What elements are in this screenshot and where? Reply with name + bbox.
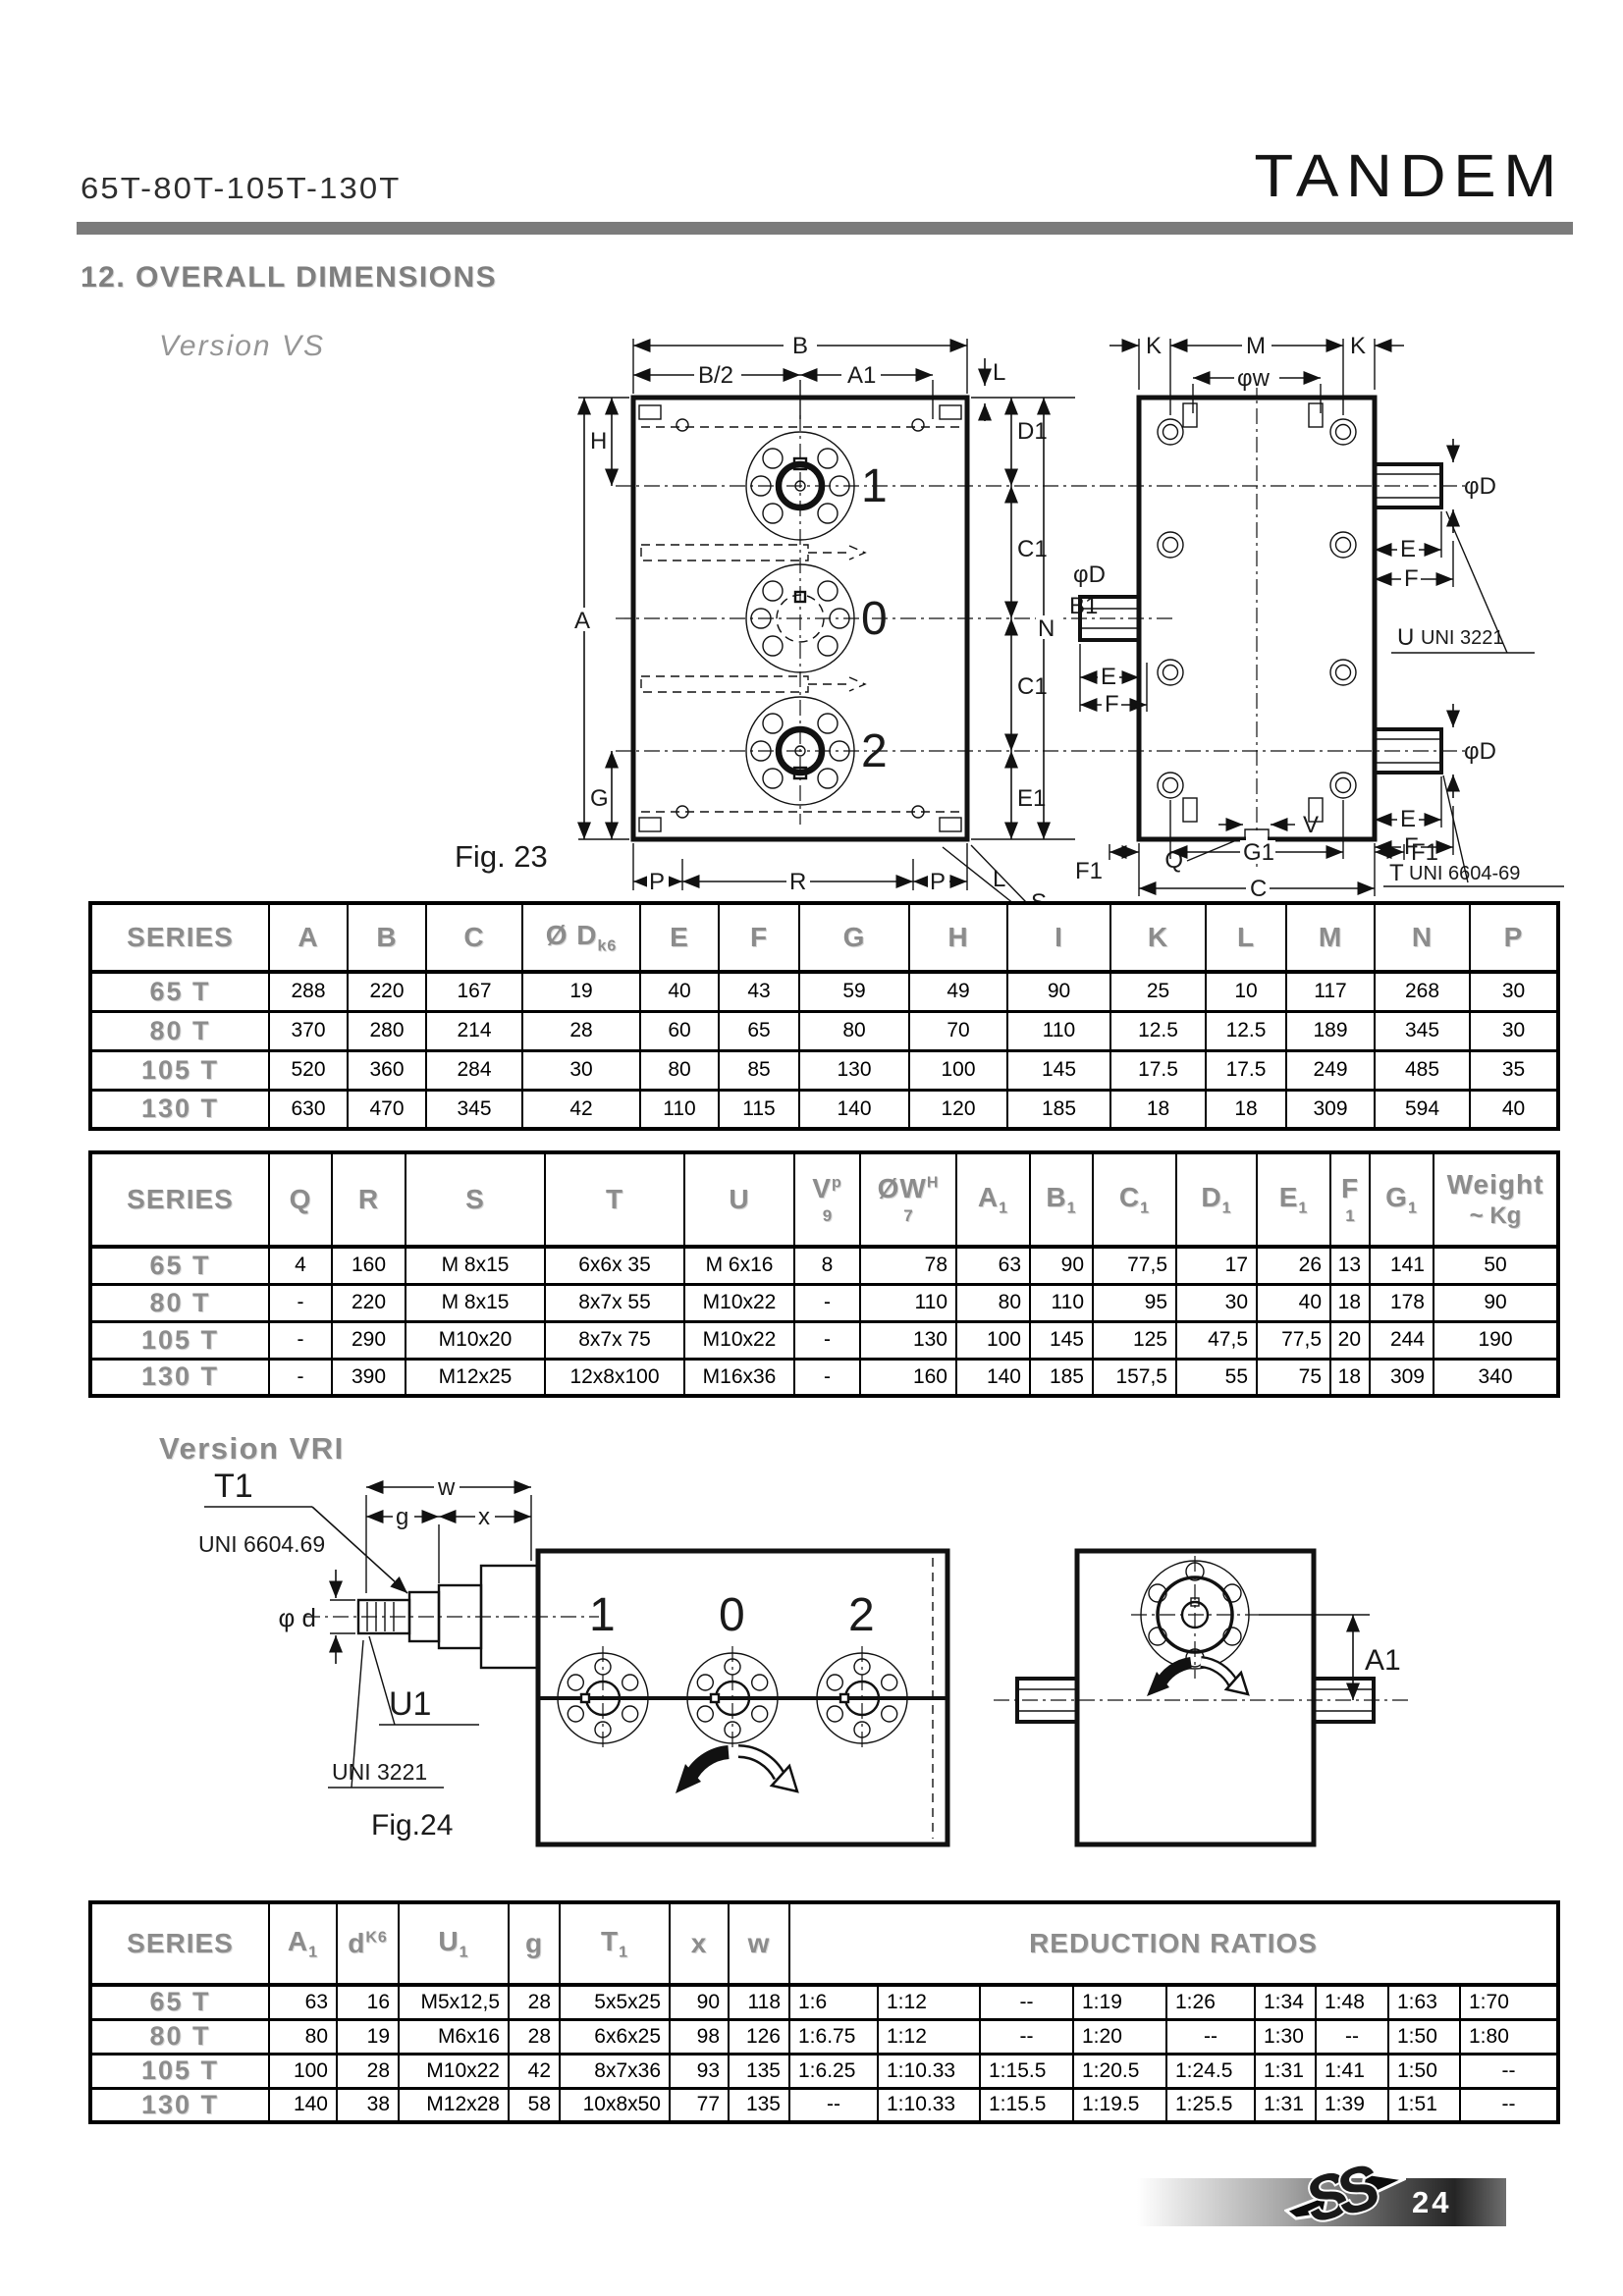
value-cell: 28 [522,1011,640,1050]
value-cell: 13 [1330,1247,1370,1284]
value-cell: 309 [1370,1359,1434,1396]
dim-M: M [1246,333,1266,359]
value-cell: 47,5 [1176,1321,1257,1359]
value-cell: 8x7x36 [560,2054,670,2088]
value-cell: 1:25.5 [1166,2088,1255,2122]
table2-header-r: R [332,1152,406,1247]
value-cell: 390 [332,1359,406,1396]
value-cell: M12x28 [399,2088,509,2122]
table2-header-t: T [545,1152,684,1247]
value-cell: 90 [1007,972,1110,1011]
value-cell: 290 [332,1321,406,1359]
value-cell: 370 [269,1011,348,1050]
value-cell: 40 [1257,1284,1330,1321]
dim-F-mid: F [1105,691,1119,718]
series-label: 80 T [90,2019,269,2054]
value-cell: 1:15.5 [980,2054,1073,2088]
value-cell: 1:63 [1388,1985,1460,2019]
value-cell: 1:6.25 [789,2054,878,2088]
value-cell: 8x7x 55 [545,1284,684,1321]
value-cell: 110 [1030,1284,1093,1321]
dim-R: R [789,869,806,895]
value-cell: M 6x16 [684,1247,794,1284]
value-cell: 1:19 [1073,1985,1166,2019]
dim-phid: φ d [278,1603,316,1632]
ref-U1: U1 [389,1685,431,1723]
table1-header-f: F [719,903,799,972]
table1-header-e: E [640,903,719,972]
value-cell: 16 [337,1985,399,2019]
value-cell: 77,5 [1257,1321,1330,1359]
table1-header-c: C [426,903,522,972]
table3-header-a: A1 [269,1902,337,1985]
fig23-drawing: 1 0 2 B B/2 A1 L H A G P R [388,329,1623,928]
fig24-caption: Fig.24 [371,1809,453,1842]
value-cell: -- [980,1985,1073,2019]
dimensions-table-2: SERIESQRSTUVp9ØWH7A1B1C1D1E1F1G1Weight~ … [88,1150,1560,1398]
dim-C: C [1250,876,1267,902]
value-cell: 1:24.5 [1166,2054,1255,2088]
value-cell: 77,5 [1093,1247,1176,1284]
value-cell: 17.5 [1206,1050,1286,1090]
table3-header-reduction-ratios: REDUCTION RATIOS [789,1902,1558,1985]
value-cell: 35 [1470,1050,1558,1090]
table1-header-a: A [269,903,348,972]
table2-header-b: B1 [1030,1152,1093,1247]
port-number-0: 0 [861,593,888,645]
dim-G1: G1 [1243,839,1274,866]
value-cell: 470 [348,1090,426,1129]
value-cell: 1:6.75 [789,2019,878,2054]
value-cell: 1:20.5 [1073,2054,1166,2088]
value-cell: 90 [1434,1284,1558,1321]
table2-header-weight: Weight~ Kg [1434,1152,1558,1247]
value-cell: - [269,1284,332,1321]
value-cell: 126 [729,2019,789,2054]
top-flange-side [1131,1556,1259,1679]
series-label: 105 T [90,2054,269,2088]
value-cell: 30 [1470,1011,1558,1050]
dim-x: x [478,1504,490,1530]
ref-T1: T1 [214,1468,253,1505]
value-cell: M16x36 [684,1359,794,1396]
value-cell: 30 [1176,1284,1257,1321]
value-cell: 345 [426,1090,522,1129]
value-cell: 1:39 [1316,2088,1388,2122]
dim-E1: E1 [1017,785,1046,812]
value-cell: 1:30 [1255,2019,1316,2054]
table2-header-q: Q [269,1152,332,1247]
value-cell: 70 [909,1011,1007,1050]
value-cell: 140 [799,1090,909,1129]
value-cell: 135 [729,2054,789,2088]
value-cell: 20 [1330,1321,1370,1359]
value-cell: 90 [670,1985,729,2019]
value-cell: 1:19.5 [1073,2088,1166,2122]
value-cell: 100 [269,2054,337,2088]
table3-row-65-t: 65 T6316M5x12,5285x5x25901181:61:12--1:1… [90,1985,1558,2019]
value-cell: 43 [719,972,799,1011]
value-cell: 1:80 [1460,2019,1558,2054]
table1-header-l: L [1206,903,1286,972]
value-cell: 6x6x 35 [545,1247,684,1284]
dim-F1-left: F1 [1075,858,1103,884]
ref-UNI6604-fig24: UNI 6604.69 [198,1531,325,1557]
value-cell: 77 [670,2088,729,2122]
value-cell: 594 [1375,1090,1470,1129]
series-label: 80 T [90,1011,269,1050]
value-cell: 50 [1434,1247,1558,1284]
table3-header-w: w [729,1902,789,1985]
dim-P-left: P [649,869,665,895]
value-cell: 110 [640,1090,719,1129]
value-cell: 28 [509,2019,560,2054]
value-cell: M5x12,5 [399,1985,509,2019]
dim-F1-right: F1 [1411,839,1438,866]
value-cell: 145 [1030,1321,1093,1359]
value-cell: 10x8x50 [560,2088,670,2122]
value-cell: 90 [1030,1247,1093,1284]
value-cell: 26 [1257,1247,1330,1284]
value-cell: 1:50 [1388,2054,1460,2088]
value-cell: 1:26 [1166,1985,1255,2019]
table2-row-65-t: 65 T4160M 8x156x6x 35M 6x16878639077,517… [90,1247,1558,1284]
dim-H: H [590,428,607,454]
value-cell: 28 [509,1985,560,2019]
value-cell: -- [1166,2019,1255,2054]
series-label: 65 T [90,972,269,1011]
value-cell: 25 [1110,972,1206,1011]
table2-header-f: F1 [1330,1152,1370,1247]
dim-L-top: L [993,359,1005,386]
ref-UNI3221: UNI 3221 [1421,627,1504,649]
dim-A: A [574,608,590,634]
value-cell: 80 [640,1050,719,1090]
table1-header-b: B [348,903,426,972]
value-cell: 309 [1286,1090,1375,1129]
value-cell: 80 [956,1284,1030,1321]
value-cell: 140 [956,1359,1030,1396]
value-cell: 280 [348,1011,426,1050]
value-cell: 12.5 [1110,1011,1206,1050]
table3-header-t: T1 [560,1902,670,1985]
value-cell: M12x25 [406,1359,545,1396]
table2-row-130-t: 130 T-390M12x2512x8x100M16x36-1601401851… [90,1359,1558,1396]
value-cell: 17 [1176,1247,1257,1284]
table3-header-d: dK6 [337,1902,399,1985]
value-cell: 117 [1286,972,1375,1011]
dim-phiw: φw [1237,365,1271,392]
rotation-arrow-icon [676,1751,797,1793]
dim-g: g [396,1504,408,1530]
value-cell: 38 [337,2088,399,2122]
value-cell: 100 [909,1050,1007,1090]
port24-1: 1 [589,1589,616,1641]
table3-row-80-t: 80 T8019M6x16286x6x25981261:6.751:12--1:… [90,2019,1558,2054]
value-cell: 63 [269,1985,337,2019]
value-cell: 185 [1007,1090,1110,1129]
version-vs-label: Version VS [159,330,325,363]
value-cell: 18 [1110,1090,1206,1129]
value-cell: 100 [956,1321,1030,1359]
dim-Q: Q [1164,847,1183,874]
value-cell: 249 [1286,1050,1375,1090]
value-cell: 42 [509,2054,560,2088]
dim-A1-fig24: A1 [1365,1644,1401,1677]
value-cell: 78 [860,1247,956,1284]
value-cell: 5x5x25 [560,1985,670,2019]
value-cell: 1:31 [1255,2088,1316,2122]
table3-header-x: x [670,1902,729,1985]
value-cell: 19 [337,2019,399,2054]
value-cell: 190 [1434,1321,1558,1359]
table2-row-80-t: 80 T-220M 8x158x7x 55M10x22-110801109530… [90,1284,1558,1321]
value-cell: 1:50 [1388,2019,1460,2054]
table1-row-80-t: 80 T370280214286065807011012.512.5189345… [90,1011,1558,1050]
value-cell: M6x16 [399,2019,509,2054]
dim-F-top: F [1404,565,1419,592]
section-title: 12. OVERALL DIMENSIONS [81,261,497,294]
value-cell: M 8x15 [406,1247,545,1284]
table1-row-130-t: 130 T63047034542110115140120185181830959… [90,1090,1558,1129]
table1-row-65-t: 65 T288220167194043594990251011726830 [90,972,1558,1011]
value-cell: -- [1460,2088,1558,2122]
value-cell: 10 [1206,972,1286,1011]
value-cell: 58 [509,2088,560,2122]
series-label: 130 T [90,1090,269,1129]
value-cell: 630 [269,1090,348,1129]
port-number-2: 2 [861,725,888,777]
fig23-caption: Fig. 23 [455,839,548,874]
ref-U: U [1397,624,1414,651]
value-cell: 140 [269,2088,337,2122]
value-cell: 80 [799,1011,909,1050]
dim-K-left: K [1146,333,1162,359]
table2-header-s: S [406,1152,545,1247]
table1-header-g: G [799,903,909,972]
table2-header-u: U [684,1152,794,1247]
fig24-drawing: T1 UNI 6604.69 φ d w g x U1 UNI 3221 1 0… [187,1468,1623,1890]
value-cell: 8x7x 75 [545,1321,684,1359]
value-cell: 160 [860,1359,956,1396]
value-cell: 1:70 [1460,1985,1558,2019]
value-cell: M10x20 [406,1321,545,1359]
value-cell: 4 [269,1247,332,1284]
table1-header-k: K [1110,903,1206,972]
value-cell: 65 [719,1011,799,1050]
table2-header-a: A1 [956,1152,1030,1247]
value-cell: 118 [729,1985,789,2019]
value-cell: 49 [909,972,1007,1011]
value-cell: 1:15.5 [980,2088,1073,2122]
port24-2: 2 [848,1589,875,1641]
value-cell: 12x8x100 [545,1359,684,1396]
value-cell: 75 [1257,1359,1330,1396]
value-cell: - [794,1359,860,1396]
table1-header-m: M [1286,903,1375,972]
dim-V: V [1303,812,1319,838]
value-cell: -- [789,2088,878,2122]
dim-E-bot: E [1400,806,1416,832]
version-vri-label: Version VRI [159,1431,345,1467]
value-cell: 80 [269,2019,337,2054]
value-cell: 42 [522,1090,640,1129]
value-cell: 288 [269,972,348,1011]
table3-row-130-t: 130 T14038M12x285810x8x5077135--1:10.331… [90,2088,1558,2122]
value-cell: 189 [1286,1011,1375,1050]
value-cell: M10x22 [684,1321,794,1359]
table2-header-w: ØWH7 [860,1152,956,1247]
dim-phiD-top: φD [1464,473,1496,500]
value-cell: 120 [909,1090,1007,1129]
table2-header-c: C1 [1093,1152,1176,1247]
dimensions-table-1: SERIESABCØ Dk6EFGHIKLMNP65 T288220167194… [88,901,1560,1131]
series-label: 80 T [90,1284,269,1321]
table1-header-d: Ø Dk6 [522,903,640,972]
value-cell: 59 [799,972,909,1011]
dim-D1: D1 [1017,418,1048,445]
table3-row-105-t: 105 T10028M10x22428x7x36931351:6.251:10.… [90,2054,1558,2088]
value-cell: 110 [1007,1011,1110,1050]
table3-header-series: SERIES [90,1902,269,1985]
value-cell: 1:12 [878,1985,980,2019]
dim-A1: A1 [847,362,876,389]
value-cell: 160 [332,1247,406,1284]
value-cell: 18 [1206,1090,1286,1129]
series-label: 130 T [90,2088,269,2122]
value-cell: 125 [1093,1321,1176,1359]
value-cell: 167 [426,972,522,1011]
value-cell: 485 [1375,1050,1470,1090]
value-cell: 520 [269,1050,348,1090]
dim-E-mid: E [1101,664,1116,690]
value-cell: -- [980,2019,1073,2054]
value-cell: 115 [719,1090,799,1129]
value-cell: M10x22 [399,2054,509,2088]
value-cell: 340 [1434,1359,1558,1396]
value-cell: 93 [670,2054,729,2088]
value-cell: 6x6x25 [560,2019,670,2054]
value-cell: 1:51 [1388,2088,1460,2122]
value-cell: 1:20 [1073,2019,1166,2054]
reduction-ratios-table: SERIESA1dK6U1gT1xwREDUCTION RATIOS65 T63… [88,1900,1560,2124]
dim-phiD-bottom: φD [1464,738,1496,765]
table2-header-e: E1 [1257,1152,1330,1247]
value-cell: 345 [1375,1011,1470,1050]
dim-E-top: E [1400,536,1416,562]
value-cell: 145 [1007,1050,1110,1090]
value-cell: 1:34 [1255,1985,1316,2019]
value-cell: 85 [719,1050,799,1090]
series-label: 65 T [90,1247,269,1284]
value-cell: - [794,1284,860,1321]
value-cell: 98 [670,2019,729,2054]
value-cell: 40 [1470,1090,1558,1129]
value-cell: 28 [337,2054,399,2088]
table3-header-u: U1 [399,1902,509,1985]
value-cell: -- [1460,2054,1558,2088]
value-cell: 110 [860,1284,956,1321]
value-cell: 220 [348,972,426,1011]
value-cell: 19 [522,972,640,1011]
series-label: 105 T [90,1321,269,1359]
dim-K-right: K [1350,333,1366,359]
value-cell: 135 [729,2088,789,2122]
ref-UNI3221-fig24: UNI 3221 [332,1759,427,1785]
table1-row-105-t: 105 T52036028430808513010014517.517.5249… [90,1050,1558,1090]
table1-header-i: I [1007,903,1110,972]
value-cell: 17.5 [1110,1050,1206,1090]
value-cell: 360 [348,1050,426,1090]
ref-T: T [1389,860,1404,886]
value-cell: 1:41 [1316,2054,1388,2088]
dim-G: G [590,785,609,812]
model-line: 65T-80T-105T-130T [81,171,401,206]
value-cell: 1:48 [1316,1985,1388,2019]
value-cell: 141 [1370,1247,1434,1284]
value-cell: 30 [1470,972,1558,1011]
value-cell: 178 [1370,1284,1434,1321]
series-label: 130 T [90,1359,269,1396]
table1-header-series: SERIES [90,903,269,972]
value-cell: 157,5 [1093,1359,1176,1396]
value-cell: - [269,1359,332,1396]
value-cell: 8 [794,1247,860,1284]
brand-title: TANDEM [1254,141,1564,210]
value-cell: 1:10.33 [878,2088,980,2122]
value-cell: 40 [640,972,719,1011]
value-cell: - [794,1321,860,1359]
value-cell: 214 [426,1011,522,1050]
series-label: 65 T [90,1985,269,2019]
value-cell: 18 [1330,1284,1370,1321]
table1-header-n: N [1375,903,1470,972]
header-rule [77,222,1573,235]
value-cell: 130 [860,1321,956,1359]
value-cell: -- [1316,2019,1388,2054]
dim-C1-top: C1 [1017,536,1048,562]
table2-header-d: D1 [1176,1152,1257,1247]
catalog-page: 65T-80T-105T-130T TANDEM 12. OVERALL DIM… [0,0,1623,2296]
value-cell: 284 [426,1050,522,1090]
table2-row-105-t: 105 T-290M10x208x7x 75M10x22-13010014512… [90,1321,1558,1359]
table3-header-g: g [509,1902,560,1985]
brand-logo-icon: S S [1284,2156,1406,2232]
series-label: 105 T [90,1050,269,1090]
value-cell: M 8x15 [406,1284,545,1321]
value-cell: 1:12 [878,2019,980,2054]
value-cell: 63 [956,1247,1030,1284]
table1-header-p: P [1470,903,1558,972]
dim-C1-bottom: C1 [1017,673,1048,700]
value-cell: 1:10.33 [878,2054,980,2088]
table1-header-h: H [909,903,1007,972]
value-cell: 1:31 [1255,2054,1316,2088]
dim-B2: B/2 [698,362,733,389]
dim-w: w [437,1474,456,1501]
value-cell: 220 [332,1284,406,1321]
value-cell: 55 [1176,1359,1257,1396]
value-cell: M10x22 [684,1284,794,1321]
table2-header-v: Vp9 [794,1152,860,1247]
value-cell: 95 [1093,1284,1176,1321]
table2-header-series: SERIES [90,1152,269,1247]
dim-N: N [1038,615,1055,642]
value-cell: 1:6 [789,1985,878,2019]
page-number: 24 [1412,2185,1451,2220]
value-cell: 18 [1330,1359,1370,1396]
table2-header-g: G1 [1370,1152,1434,1247]
